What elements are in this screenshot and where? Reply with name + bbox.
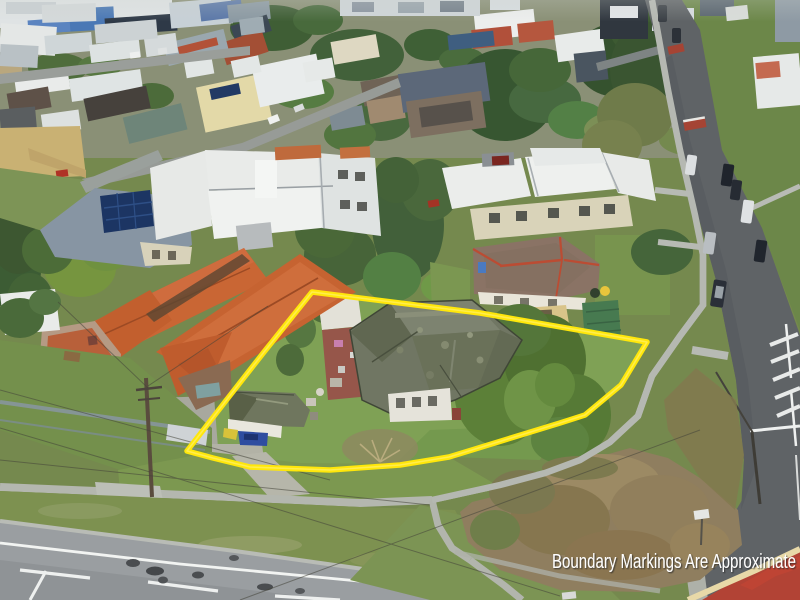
svg-text:Boundary Markings Are Approxim: Boundary Markings Are Approximate [552,551,796,573]
